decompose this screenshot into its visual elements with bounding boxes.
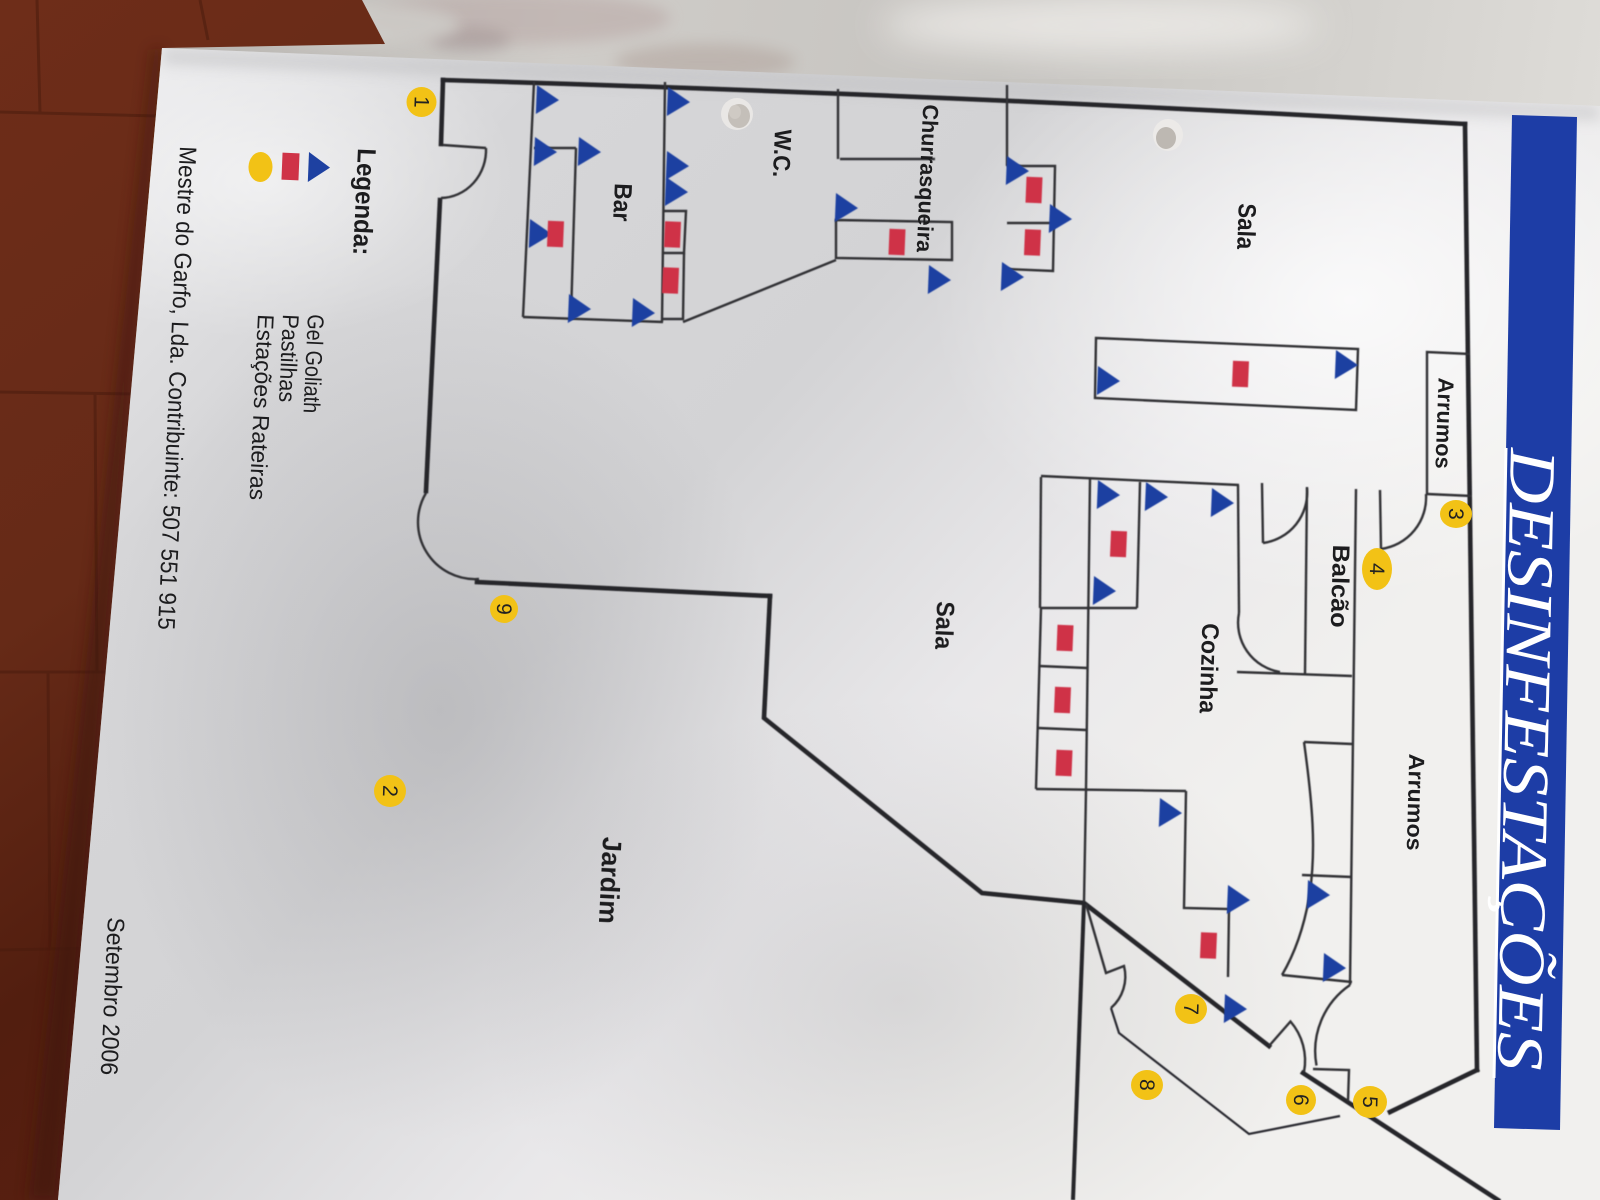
svg-text:3: 3 <box>1444 508 1467 520</box>
svg-text:Arrumos: Arrumos <box>1402 753 1430 851</box>
svg-text:Balcão: Balcão <box>1325 544 1354 628</box>
svg-text:1: 1 <box>409 96 432 108</box>
svg-text:Bar: Bar <box>607 183 637 222</box>
svg-text:4: 4 <box>1365 563 1388 576</box>
svg-text:Jardim: Jardim <box>593 836 627 924</box>
svg-text:Sala: Sala <box>929 601 959 651</box>
svg-text:Legenda:: Legenda: <box>347 148 382 256</box>
svg-text:W.C.: W.C. <box>767 129 796 178</box>
svg-text:9: 9 <box>492 603 515 615</box>
svg-text:7: 7 <box>1179 1003 1202 1015</box>
svg-text:6: 6 <box>1289 1094 1312 1106</box>
svg-text:Sala: Sala <box>1231 203 1261 251</box>
svg-text:Cozinha: Cozinha <box>1194 623 1224 714</box>
svg-text:Arrumos: Arrumos <box>1430 377 1458 469</box>
svg-text:8: 8 <box>1135 1079 1158 1091</box>
svg-text:2: 2 <box>378 785 401 797</box>
svg-text:5: 5 <box>1358 1096 1381 1108</box>
